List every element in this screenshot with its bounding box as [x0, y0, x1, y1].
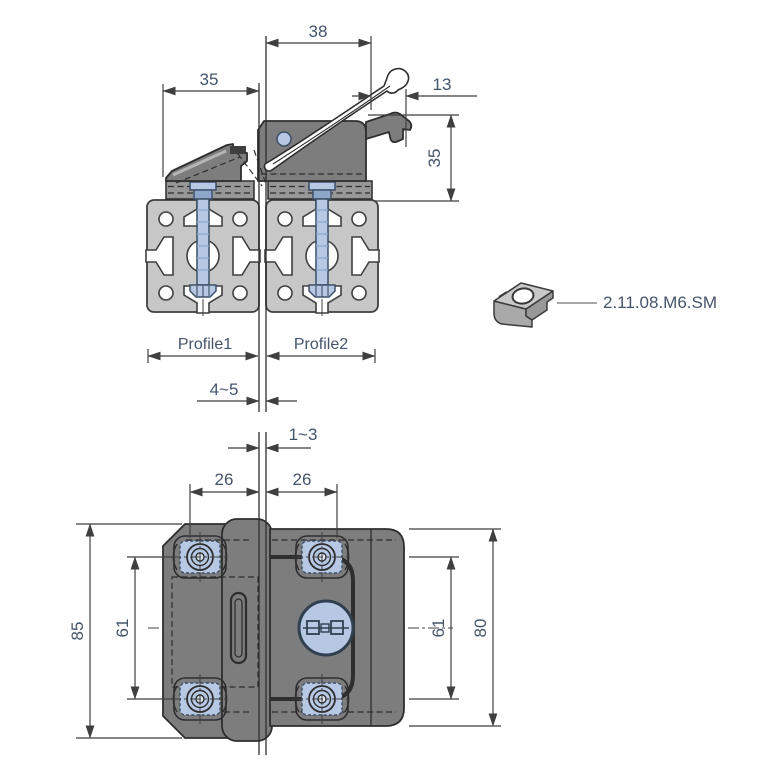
part-number-label: 2.11.08.M6.SM [603, 293, 717, 312]
dim-38-label: 38 [309, 22, 328, 41]
latch-technical-drawing: 38 35 13 35 Profile1 Profile2 [0, 0, 768, 768]
technical-drawing-page: 38 35 13 35 Profile1 Profile2 [0, 0, 768, 768]
dim-4-5-label: 4~5 [210, 380, 239, 399]
dim-26-left-label: 26 [215, 470, 234, 489]
dim-26-right-label: 26 [293, 470, 312, 489]
dim-61-right-label: 61 [429, 619, 448, 638]
dim-80-label: 80 [471, 619, 490, 638]
profile2-label: Profile2 [294, 336, 348, 353]
pivot-hole [277, 132, 291, 146]
catch-lip [230, 146, 246, 154]
clamp-circle [299, 601, 353, 655]
dim-35-right-label: 35 [425, 149, 444, 168]
dim-35-left-label: 35 [200, 70, 219, 89]
adjustment-slot [231, 593, 246, 663]
dim-85-label: 85 [68, 622, 87, 641]
dim-61-left-label: 61 [113, 619, 132, 638]
dim-13-label: 13 [433, 75, 452, 94]
dim-1-3-label: 1~3 [289, 425, 318, 444]
profile1-label: Profile1 [178, 336, 232, 353]
